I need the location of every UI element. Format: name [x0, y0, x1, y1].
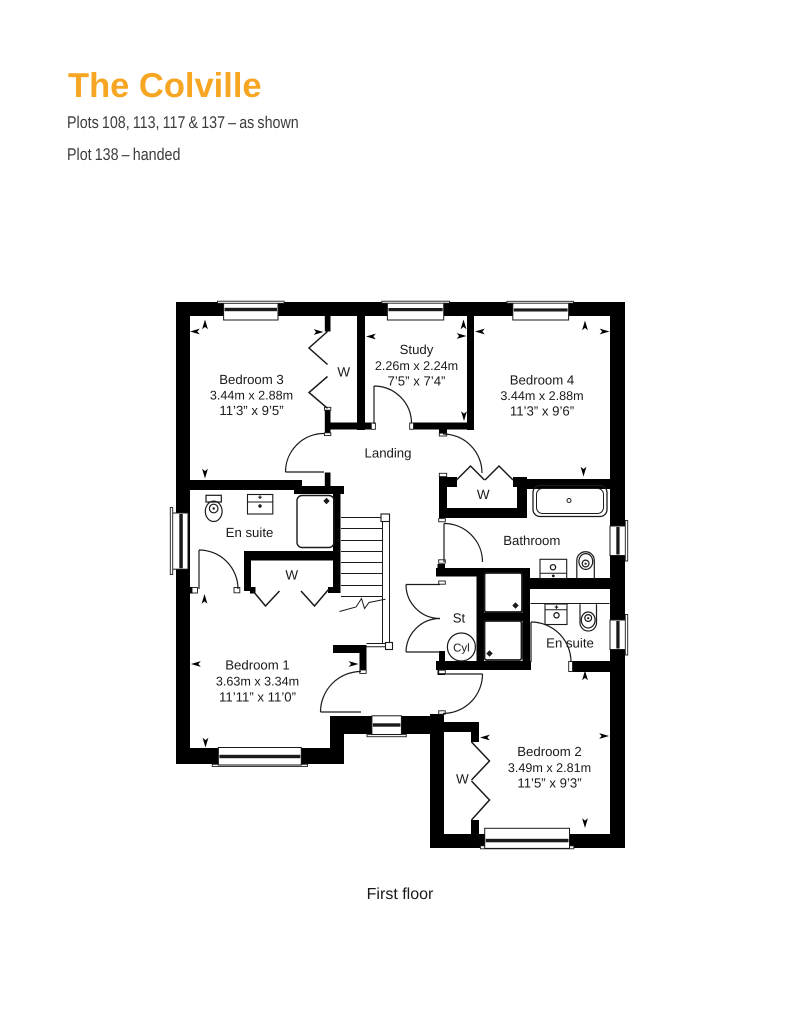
svg-text:Bedroom 4: Bedroom 4 [510, 373, 575, 388]
svg-text:W: W [285, 568, 298, 583]
svg-text:Bathroom: Bathroom [503, 533, 560, 548]
svg-text:3.44m x 2.88m: 3.44m x 2.88m [500, 389, 583, 403]
svg-text:W: W [456, 772, 469, 787]
svg-text:7’5” x 7’4”: 7’5” x 7’4” [388, 374, 446, 389]
svg-text:Landing: Landing [365, 446, 412, 461]
svg-text:3.49m x 2.81m: 3.49m x 2.81m [508, 761, 591, 775]
svg-text:11’11” x 11’0”: 11’11” x 11’0” [219, 690, 296, 705]
svg-text:Study: Study [400, 342, 434, 357]
svg-text:W: W [337, 365, 350, 380]
svg-text:En suite: En suite [226, 525, 274, 540]
svg-text:3.44m x 2.88m: 3.44m x 2.88m [210, 389, 293, 403]
svg-text:11’3” x 9’5”: 11’3” x 9’5” [219, 403, 283, 418]
svg-text:En suite: En suite [546, 636, 594, 651]
svg-text:11’3” x 9’6”: 11’3” x 9’6” [510, 404, 574, 419]
svg-text:3.63m x 3.34m: 3.63m x 3.34m [216, 675, 299, 689]
svg-text:Bedroom 1: Bedroom 1 [225, 658, 290, 673]
svg-text:Bedroom 2: Bedroom 2 [517, 744, 582, 759]
svg-text:11’5” x 9’3”: 11’5” x 9’3” [517, 776, 581, 791]
svg-text:W: W [477, 487, 490, 502]
svg-text:Bedroom 3: Bedroom 3 [219, 372, 284, 387]
svg-text:St: St [453, 611, 466, 626]
svg-text:2.26m x 2.24m: 2.26m x 2.24m [375, 359, 458, 373]
svg-text:Cyl: Cyl [453, 643, 470, 655]
